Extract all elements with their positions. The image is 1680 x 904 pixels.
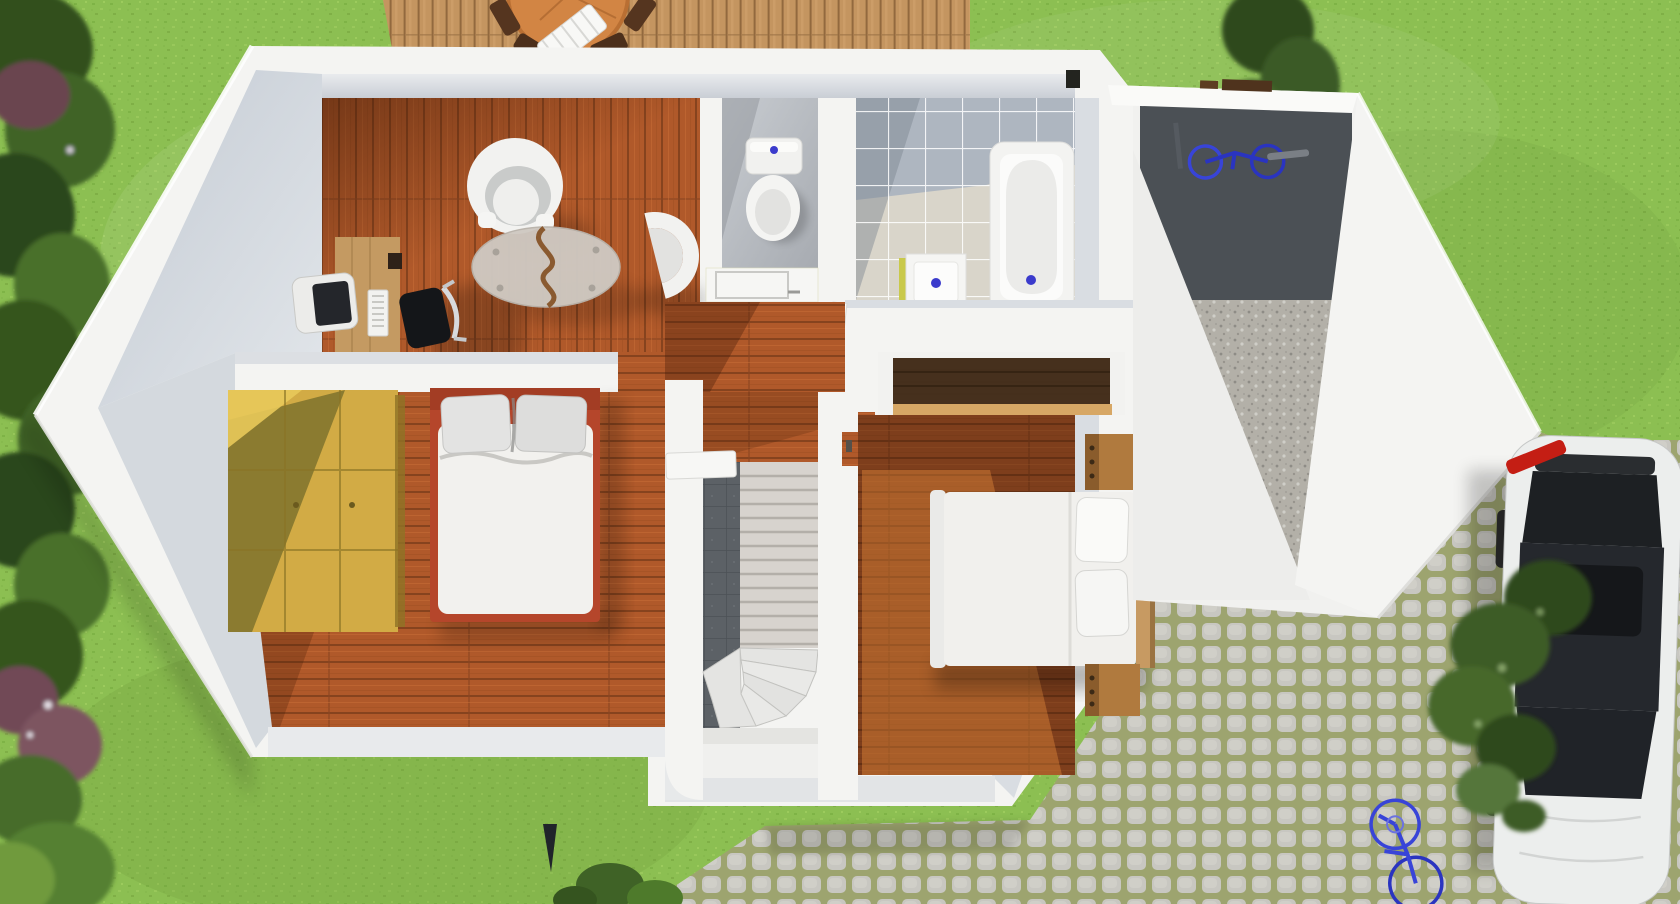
room-wc (706, 98, 818, 302)
tread-shade (740, 462, 818, 648)
house-shadow-on-path (765, 820, 1030, 855)
room-office (291, 98, 708, 387)
nightstand-knob (1090, 474, 1095, 479)
double-bed-red (430, 388, 624, 642)
table-screw (493, 249, 500, 256)
monitor-screen (312, 281, 352, 327)
floorplan-render (0, 0, 1680, 904)
table-glass (472, 227, 620, 307)
bed2-footboard (930, 490, 946, 668)
stair-right-wall (818, 466, 858, 800)
crt-monitor (291, 272, 359, 334)
fence-wood (1200, 80, 1218, 89)
wardrobe-knob (293, 502, 299, 508)
bed-shadow (598, 400, 624, 630)
door-handle (846, 440, 852, 452)
main-house (18, 46, 1155, 806)
stair-cap-ledge (666, 451, 737, 479)
nightstand-knob (1090, 446, 1095, 451)
nightstand-knob (1090, 702, 1095, 707)
bathroom-counter-shade (845, 300, 1133, 308)
keyboard (368, 290, 388, 336)
stair-left-wall (665, 380, 703, 800)
nightstand-knob (1090, 690, 1095, 695)
bush (1502, 800, 1546, 832)
car-rear-window (1522, 471, 1664, 548)
wall-face-bottom-left (268, 727, 665, 757)
closet (878, 352, 1125, 415)
toilet-seat (755, 189, 791, 235)
bush-highlight (1498, 664, 1506, 672)
wardrobe-side (395, 395, 405, 627)
oval-coffee-table (472, 227, 620, 307)
bathtub-basin (1006, 160, 1057, 294)
nightstand-knob (1090, 676, 1095, 681)
pillow (1075, 569, 1129, 637)
nightstand-top (1085, 434, 1140, 490)
wall-vent-slot (1066, 70, 1080, 88)
flower-dots (27, 732, 33, 738)
room-bedroom-left (228, 352, 665, 727)
stair-right-wall-stub (818, 392, 858, 432)
tub-armchair-arm (478, 212, 496, 228)
pillow (515, 395, 587, 453)
pillow (441, 394, 512, 453)
washbasin-drain (931, 278, 941, 288)
table-screw (589, 285, 596, 292)
divider-wall-face (235, 352, 618, 364)
nightstand-knob (1090, 460, 1095, 465)
wardrobe-knob (349, 502, 355, 508)
bathtub-drain (1026, 275, 1036, 285)
table-screw (593, 247, 600, 254)
wall-face-top (322, 74, 1075, 98)
table-screw (497, 285, 504, 292)
bush-highlight (1537, 609, 1544, 616)
double-bed-white (930, 490, 1155, 690)
screenshot-root (0, 0, 1680, 904)
tub-armchair-cushion (493, 179, 539, 225)
fence-wood (1222, 79, 1272, 92)
landing-shade (703, 728, 818, 744)
nightstand-bottom (1085, 664, 1140, 716)
bush-highlight (1475, 721, 1482, 728)
desk-item-dark (388, 253, 402, 269)
flower-dots (67, 147, 74, 154)
bathtub (990, 142, 1074, 312)
flower-dots (44, 701, 52, 709)
stair-treads (740, 462, 818, 648)
toilet-flush-button (770, 146, 778, 154)
tub-armchair (467, 138, 563, 234)
wc-cabinet (706, 268, 818, 302)
pine-wardrobe (228, 390, 405, 632)
pillow (1075, 497, 1129, 563)
closet-rod (893, 404, 1112, 415)
